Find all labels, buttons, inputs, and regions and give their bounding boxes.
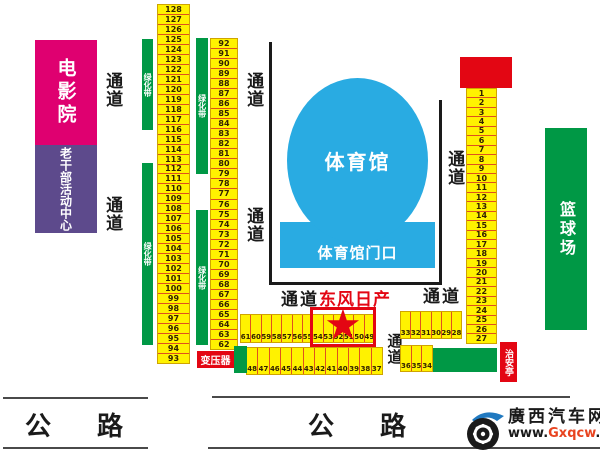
stall-cell: 57 bbox=[281, 315, 291, 342]
stall-cell: 22 bbox=[467, 286, 496, 295]
stall-cell: 36 bbox=[401, 346, 411, 371]
stall-cell: 15 bbox=[467, 220, 496, 229]
stall-cell: 69 bbox=[211, 269, 237, 279]
stadium-gate-label: 体育馆门口 bbox=[317, 242, 397, 263]
green-block-right bbox=[433, 348, 497, 372]
stall-cell: 122 bbox=[158, 64, 189, 74]
stall-cell: 5 bbox=[467, 126, 496, 135]
stall-cell: 114 bbox=[158, 144, 189, 154]
stall-cell: 80 bbox=[211, 158, 237, 168]
stall-cell: 28 bbox=[451, 312, 461, 338]
stall-cell: 17 bbox=[467, 239, 496, 248]
stall-cell: 100 bbox=[158, 283, 189, 293]
stall-cell: 66 bbox=[211, 299, 237, 309]
stall-cell: 42 bbox=[314, 348, 325, 374]
stall-cell: 25 bbox=[467, 315, 496, 324]
stall-cell: 97 bbox=[158, 313, 189, 323]
stall-cell: 60 bbox=[250, 315, 260, 342]
stall-cell: 95 bbox=[158, 333, 189, 343]
stall-cell: 81 bbox=[211, 148, 237, 158]
stall-cell: 88 bbox=[211, 78, 237, 88]
stall-cell: 64 bbox=[211, 319, 237, 329]
stall-cell: 113 bbox=[158, 154, 189, 164]
activity-center-label: 老干部活动中心 bbox=[58, 147, 75, 231]
stall-row-b: 484746454443424140393837 bbox=[246, 347, 383, 375]
road-line-top-right bbox=[212, 396, 570, 398]
stall-cell: 110 bbox=[158, 183, 189, 193]
stall-cell: 12 bbox=[467, 192, 496, 201]
stall-cell: 39 bbox=[348, 348, 359, 374]
stall-cell: 2 bbox=[467, 97, 496, 106]
stall-cell: 72 bbox=[211, 239, 237, 249]
stall-cell: 30 bbox=[431, 312, 441, 338]
logo-brand-text: 廣西汽车网 bbox=[508, 408, 600, 427]
stall-cell: 90 bbox=[211, 58, 237, 68]
passage-label-right-group: 通道 bbox=[423, 286, 461, 308]
stall-cell: 1 bbox=[467, 89, 496, 97]
security-booth: 治安亭 bbox=[500, 342, 517, 382]
basketball-court: 篮球场 bbox=[545, 128, 587, 330]
stall-cell: 45 bbox=[280, 348, 291, 374]
stall-cell: 33 bbox=[401, 312, 410, 338]
stall-cell: 32 bbox=[410, 312, 420, 338]
stall-cell: 103 bbox=[158, 253, 189, 263]
logo-url-suffix: .com bbox=[595, 426, 600, 441]
stall-cell: 41 bbox=[325, 348, 336, 374]
stall-cell: 16 bbox=[467, 230, 496, 239]
stall-cell: 76 bbox=[211, 199, 237, 209]
stall-cell: 19 bbox=[467, 258, 496, 267]
stall-cell: 118 bbox=[158, 104, 189, 114]
stall-cell: 44 bbox=[291, 348, 302, 374]
stall-cell: 93 bbox=[158, 353, 189, 363]
stall-cell: 89 bbox=[211, 68, 237, 78]
stall-cell: 106 bbox=[158, 223, 189, 233]
stall-cell: 120 bbox=[158, 84, 189, 94]
stall-cell: 47 bbox=[257, 348, 268, 374]
stall-cell: 6 bbox=[467, 135, 496, 144]
stall-cell: 29 bbox=[441, 312, 451, 338]
stall-cell: 127 bbox=[158, 14, 189, 24]
greenbelt-bar-a1: 绿化带 bbox=[142, 39, 153, 130]
stall-cell: 108 bbox=[158, 203, 189, 213]
stall-cell: 96 bbox=[158, 323, 189, 333]
stall-cell: 86 bbox=[211, 98, 237, 108]
stall-cell: 99 bbox=[158, 293, 189, 303]
passage-label-left-lower: 通道 bbox=[101, 196, 123, 232]
site-logo: 廣西汽车网 www.Gxqcw.com bbox=[464, 408, 600, 452]
activity-center-building: 老干部活动中心 bbox=[35, 145, 97, 233]
stall-cell: 26 bbox=[467, 324, 496, 333]
stall-cell: 84 bbox=[211, 118, 237, 128]
stall-cell: 79 bbox=[211, 168, 237, 178]
stall-cell: 87 bbox=[211, 88, 237, 98]
stall-cell: 121 bbox=[158, 74, 189, 84]
stall-cell: 119 bbox=[158, 94, 189, 104]
transformer-label: 变压器 bbox=[201, 352, 231, 367]
greenbelt-label: 绿化带 bbox=[197, 94, 206, 118]
stall-cell: 115 bbox=[158, 134, 189, 144]
logo-url-text: www.Gxqcw.com bbox=[508, 427, 600, 441]
stall-cell: 21 bbox=[467, 277, 496, 286]
logo-url-prefix: www. bbox=[508, 426, 548, 441]
stall-cell: 56 bbox=[292, 315, 302, 342]
road-label-center: 公路 bbox=[308, 406, 452, 443]
stall-cell: 48 bbox=[247, 348, 257, 374]
stall-cell: 61 bbox=[241, 315, 250, 342]
red-block-top-right bbox=[460, 57, 512, 88]
dongfeng-booth-highlight: ★ bbox=[310, 307, 376, 347]
greenbelt-bar-a2: 绿化带 bbox=[142, 163, 153, 345]
stall-cell: 74 bbox=[211, 219, 237, 229]
basketball-court-label: 篮球场 bbox=[554, 201, 578, 258]
stall-cell: 68 bbox=[211, 279, 237, 289]
stall-column-left: 1281271261251241231221211201191181171161… bbox=[157, 4, 190, 364]
stadium-building: 体育馆 bbox=[287, 78, 428, 243]
stall-row-d: 363534 bbox=[400, 345, 433, 372]
stall-cell: 63 bbox=[211, 329, 237, 339]
greenbelt-bar-b1: 绿化带 bbox=[196, 38, 208, 174]
stall-cell: 35 bbox=[411, 346, 422, 371]
stall-cell: 116 bbox=[158, 124, 189, 134]
stall-column-right: 1234567891011121314151617181920212223242… bbox=[466, 88, 497, 344]
greenbelt-bar-b2: 绿化带 bbox=[196, 210, 208, 345]
passage-label-right-mid: 通道 bbox=[443, 150, 465, 186]
stall-cell: 34 bbox=[421, 346, 432, 371]
stall-cell: 70 bbox=[211, 259, 237, 269]
stall-cell: 107 bbox=[158, 213, 189, 223]
road-line-bottom-left bbox=[3, 447, 148, 449]
road-label-left: 公路 bbox=[25, 406, 169, 443]
stall-cell: 85 bbox=[211, 108, 237, 118]
stall-cell: 59 bbox=[261, 315, 271, 342]
greenbelt-label: 绿化带 bbox=[143, 242, 152, 266]
stall-cell: 128 bbox=[158, 5, 189, 14]
stall-cell: 7 bbox=[467, 145, 496, 154]
stall-cell: 78 bbox=[211, 178, 237, 188]
stall-cell: 124 bbox=[158, 44, 189, 54]
stall-cell: 104 bbox=[158, 243, 189, 253]
stall-cell: 105 bbox=[158, 233, 189, 243]
stall-cell: 123 bbox=[158, 54, 189, 64]
stall-cell: 109 bbox=[158, 193, 189, 203]
stall-cell: 98 bbox=[158, 303, 189, 313]
star-icon: ★ bbox=[324, 304, 362, 346]
stall-cell: 73 bbox=[211, 229, 237, 239]
stall-cell: 18 bbox=[467, 248, 496, 257]
stall-cell: 101 bbox=[158, 273, 189, 283]
stall-cell: 10 bbox=[467, 173, 496, 182]
stall-cell: 40 bbox=[337, 348, 348, 374]
stadium-label: 体育馆 bbox=[325, 146, 391, 175]
stall-cell: 126 bbox=[158, 24, 189, 34]
stall-cell: 46 bbox=[269, 348, 280, 374]
wheel-logo-icon bbox=[464, 408, 506, 452]
stall-cell: 14 bbox=[467, 211, 496, 220]
stall-cell: 83 bbox=[211, 128, 237, 138]
stall-cell: 58 bbox=[271, 315, 281, 342]
stall-cell: 75 bbox=[211, 209, 237, 219]
stall-cell: 94 bbox=[158, 343, 189, 353]
stall-column-mid: 9291908988878685848382818079787776757473… bbox=[210, 38, 238, 350]
security-booth-label: 治安亭 bbox=[502, 349, 515, 376]
passage-label-mid-lower: 通道 bbox=[242, 207, 264, 243]
stall-cell: 9 bbox=[467, 164, 496, 173]
stall-cell: 67 bbox=[211, 289, 237, 299]
transformer-box: 变压器 bbox=[197, 351, 234, 368]
stall-cell: 20 bbox=[467, 267, 496, 276]
stall-row-c: 333231302928 bbox=[400, 311, 462, 339]
stall-cell: 43 bbox=[303, 348, 314, 374]
stall-cell: 112 bbox=[158, 164, 189, 174]
passage-label-mid-upper: 通道 bbox=[242, 72, 264, 108]
cinema-building: 电影院 bbox=[35, 40, 97, 145]
stall-cell: 31 bbox=[420, 312, 430, 338]
stall-cell: 3 bbox=[467, 107, 496, 116]
road-line-top-left bbox=[3, 397, 148, 399]
stall-cell: 13 bbox=[467, 201, 496, 210]
venue-map: 电影院 老干部活动中心 通道 通道 绿化带 绿化带 12812712612512… bbox=[0, 0, 600, 455]
green-block-transformer bbox=[234, 346, 247, 373]
stall-cell: 71 bbox=[211, 249, 237, 259]
stall-cell: 125 bbox=[158, 34, 189, 44]
stall-cell: 24 bbox=[467, 305, 496, 314]
stall-cell: 23 bbox=[467, 296, 496, 305]
stall-cell: 77 bbox=[211, 188, 237, 198]
stall-cell: 8 bbox=[467, 154, 496, 163]
stadium-boundary-right-line bbox=[439, 100, 442, 285]
stall-cell: 4 bbox=[467, 116, 496, 125]
passage-label-left-upper: 通道 bbox=[101, 72, 123, 108]
stall-cell: 102 bbox=[158, 263, 189, 273]
greenbelt-label: 绿化带 bbox=[197, 266, 206, 290]
logo-url-highlight: Gxqcw bbox=[548, 426, 595, 441]
stall-cell: 92 bbox=[211, 39, 237, 48]
stall-cell: 38 bbox=[359, 348, 370, 374]
stall-cell: 65 bbox=[211, 309, 237, 319]
greenbelt-label: 绿化带 bbox=[143, 73, 152, 97]
stall-cell: 117 bbox=[158, 114, 189, 124]
stall-cell: 37 bbox=[371, 348, 382, 374]
stall-cell: 91 bbox=[211, 48, 237, 58]
stall-cell: 27 bbox=[467, 333, 496, 342]
stall-cell: 11 bbox=[467, 182, 496, 191]
stadium-boundary-left-line bbox=[269, 42, 272, 285]
stall-cell: 111 bbox=[158, 173, 189, 183]
cinema-label: 电影院 bbox=[53, 58, 80, 127]
stall-cell: 82 bbox=[211, 138, 237, 148]
